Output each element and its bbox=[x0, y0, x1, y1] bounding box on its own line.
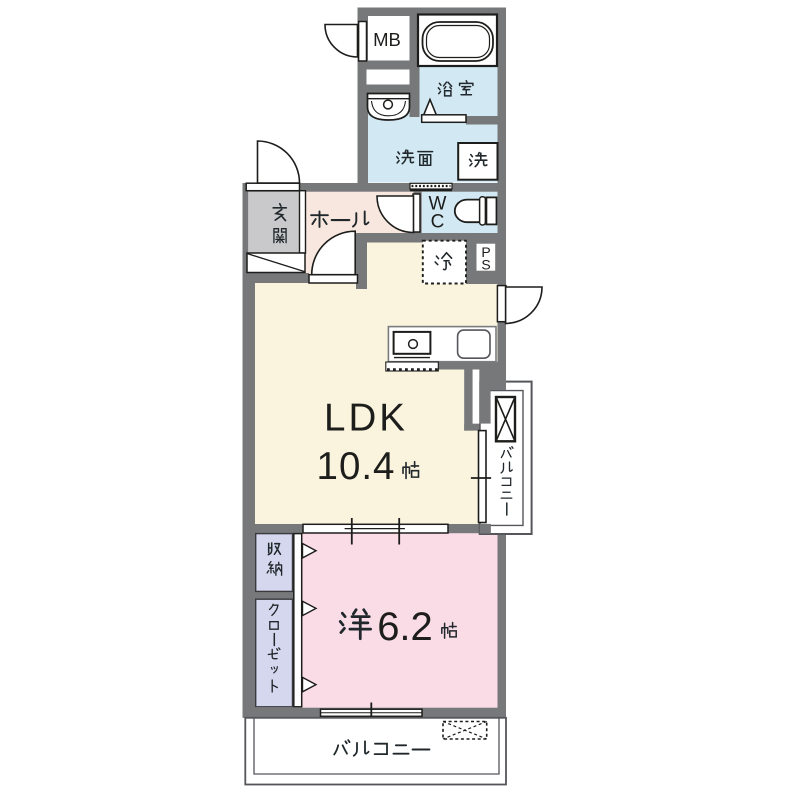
svg-text:MB: MB bbox=[373, 29, 401, 50]
svg-text:6.2: 6.2 bbox=[377, 605, 433, 649]
svg-text:C: C bbox=[431, 212, 445, 233]
svg-text:10.4: 10.4 bbox=[317, 445, 396, 488]
svg-text:LDK: LDK bbox=[324, 397, 408, 440]
svg-text:S: S bbox=[481, 257, 490, 273]
